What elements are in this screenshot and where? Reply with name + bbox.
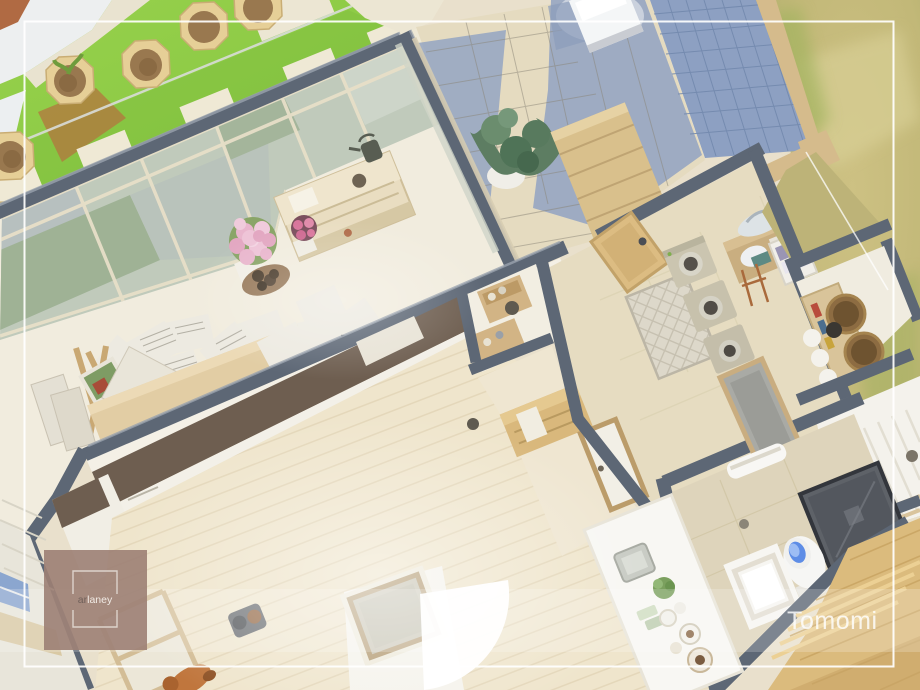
svg-text:arlaney: arlaney (78, 594, 113, 606)
svg-text:Tomomi: Tomomi (787, 607, 878, 635)
